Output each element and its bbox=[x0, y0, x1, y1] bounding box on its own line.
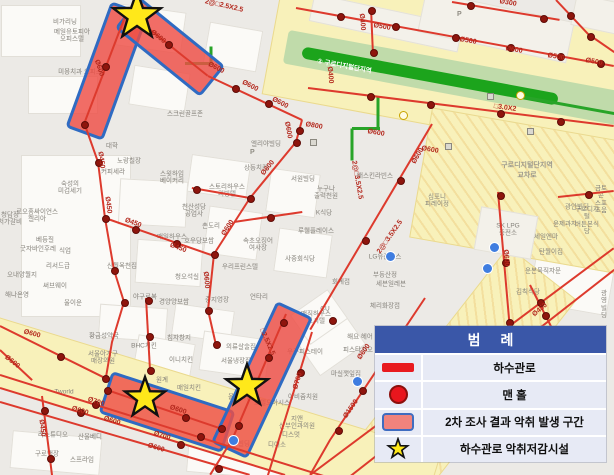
parking-icon: P bbox=[250, 149, 255, 156]
building-label: 메일유토피아 오피스텔 bbox=[54, 29, 90, 44]
manhole bbox=[235, 422, 243, 430]
building-label: 호우당보쌈 bbox=[184, 237, 214, 244]
pipe-size-label: Ø400 bbox=[326, 66, 334, 84]
pipe-size-label: Ø600 bbox=[202, 271, 210, 289]
utility-box-icon bbox=[310, 139, 317, 146]
manhole bbox=[205, 307, 213, 315]
pipe-size-label: Ø600 bbox=[283, 121, 293, 139]
manhole bbox=[247, 195, 255, 203]
building-label: 써브웨이 bbox=[43, 282, 67, 289]
legend-label-manhole: 맨 홀 bbox=[423, 382, 606, 407]
legend-title: 범 례 bbox=[375, 326, 606, 353]
building-label: 침자창지 bbox=[167, 334, 191, 341]
manhole bbox=[567, 12, 575, 20]
building-label: 속초오징어 여사장 bbox=[243, 238, 273, 253]
manhole bbox=[397, 177, 405, 185]
manhole bbox=[165, 41, 173, 49]
building-label: 스크린골프존 bbox=[167, 110, 203, 117]
building-label: 광영빌딩 bbox=[599, 290, 609, 320]
building-label: 세븐일레븐 bbox=[376, 280, 406, 287]
building-label: 대학 bbox=[106, 142, 118, 149]
manhole bbox=[337, 13, 345, 21]
manhole bbox=[557, 118, 565, 126]
building-label: 윤제과자 bbox=[553, 220, 577, 227]
pipe-size-label: 2@□3.5X2.5 bbox=[350, 160, 364, 200]
building-label: K식당 bbox=[316, 209, 332, 216]
pipe-size-label: Ø700 bbox=[292, 372, 304, 390]
building-label: 커피세라 bbox=[101, 168, 125, 175]
legend-row-manhole: 맨 홀 bbox=[375, 382, 606, 407]
building-label: 식업 bbox=[59, 247, 71, 254]
odor-facility-star bbox=[108, 0, 166, 45]
building-label: 울이운 bbox=[64, 299, 82, 306]
manhole bbox=[427, 101, 435, 109]
manhole bbox=[368, 7, 376, 15]
manhole bbox=[197, 433, 205, 441]
manhole bbox=[218, 425, 226, 433]
pipe-size-label: Ø600 bbox=[502, 249, 510, 267]
legend-row-sewer-pipe: 하수관로 bbox=[375, 355, 606, 380]
subway-track-line bbox=[351, 128, 354, 160]
building-label: 체리화장점 bbox=[370, 302, 400, 309]
sewer-pipe-symbol bbox=[382, 363, 414, 372]
manhole bbox=[215, 465, 223, 473]
manhole bbox=[542, 312, 550, 320]
building-label: 경양양보쌈 bbox=[159, 298, 189, 305]
utility-box-icon bbox=[487, 93, 494, 100]
building-label: 천산성당 공업사 bbox=[182, 204, 206, 219]
building-label: 산울베디 bbox=[78, 433, 102, 440]
manhole bbox=[392, 23, 400, 31]
odor-facility-star bbox=[221, 360, 273, 412]
legend-row-odor-facility: 하수관로 악취저감시설 bbox=[375, 437, 606, 462]
manhole bbox=[293, 139, 301, 147]
manhole bbox=[585, 191, 593, 199]
manhole bbox=[41, 407, 49, 415]
building-label: 운본묵직자문 bbox=[525, 267, 561, 274]
building-label: 굿자바인후레 bbox=[20, 245, 56, 252]
manhole bbox=[587, 33, 595, 41]
manhole bbox=[145, 297, 153, 305]
transit-stop-icon bbox=[228, 435, 239, 446]
building-label: 금토콘 스포츠움 bbox=[595, 185, 608, 215]
manhole bbox=[57, 353, 65, 361]
manhole bbox=[362, 237, 370, 245]
legend-label-odor-facility: 하수관로 악취저감시설 bbox=[423, 437, 606, 462]
building-label: 서울아가구 매장의원 bbox=[88, 351, 118, 366]
building-label: 사중회식당 bbox=[285, 255, 315, 262]
odor-section-symbol bbox=[382, 413, 414, 431]
transit-stop-icon bbox=[482, 263, 493, 274]
transit-stop-icon bbox=[385, 251, 396, 262]
manhole-symbol bbox=[389, 385, 408, 404]
building-label: 리서드급 bbox=[46, 262, 70, 269]
building-label: 촌도리 bbox=[202, 222, 220, 229]
map-screenshot: ② 구로디지털단지역Ø500Ø500Ø600Ø500Ø500Ø300Ø400Ø4… bbox=[0, 0, 614, 475]
manhole bbox=[497, 192, 505, 200]
building-label: 심포니 피레이정 bbox=[425, 194, 449, 209]
manhole bbox=[232, 85, 240, 93]
building-label: 부동산정 bbox=[373, 271, 397, 278]
manhole bbox=[280, 319, 288, 327]
building-label: 언타리 bbox=[250, 293, 268, 300]
manhole bbox=[102, 215, 110, 223]
building-label: 베등질 bbox=[36, 236, 54, 243]
pipe-size-label: Ø450 bbox=[96, 151, 105, 169]
building-label: 탄월이집 bbox=[539, 248, 563, 255]
subway-track-line bbox=[377, 97, 380, 128]
building bbox=[273, 227, 333, 278]
building-label: 배스킨라빈스 bbox=[357, 172, 393, 179]
legend-row-odor-section: 2차 조사 결과 악취 발생 구간 bbox=[375, 410, 606, 435]
utility-box-icon bbox=[527, 128, 534, 135]
pipe-size-label: 2@□2.5X2.5 bbox=[204, 0, 244, 14]
building-label: 이니치킨 bbox=[169, 356, 193, 363]
building-label: 스윗하임 베이커리 bbox=[160, 171, 184, 186]
pipe-size-label: Ø800 bbox=[305, 121, 323, 131]
building-label: 매일치킨 bbox=[177, 384, 201, 391]
building-label: 해나온영 bbox=[5, 291, 29, 298]
manhole bbox=[102, 375, 110, 383]
transit-stop-icon bbox=[489, 242, 500, 253]
odor-facility-star bbox=[120, 373, 170, 423]
transit-stop-icon bbox=[352, 376, 363, 387]
legend-label-sewer-pipe: 하수관로 bbox=[423, 355, 606, 380]
manhole bbox=[81, 121, 89, 129]
odor-facility-star-symbol bbox=[386, 437, 410, 461]
legend: 범 례 하수관로 맨 홀 2차 조사 결과 악취 발생 구간 bbox=[375, 326, 606, 462]
building-label: 로오홈싸이언스 켈리아 bbox=[16, 209, 58, 224]
building-label: 디스멋 bbox=[282, 431, 300, 438]
building-label: 광안빌딩 bbox=[565, 203, 589, 210]
parking-icon: P bbox=[457, 11, 462, 18]
manhole bbox=[296, 127, 304, 135]
manhole bbox=[146, 333, 154, 341]
building-label: 노랑칠장 bbox=[117, 157, 141, 164]
building-label: 루웰플레이스 bbox=[298, 227, 334, 234]
building-label: 세일엔마 bbox=[534, 233, 558, 240]
manhole bbox=[540, 15, 548, 23]
manhole bbox=[467, 2, 475, 10]
building-label: BHC치킨 bbox=[131, 342, 157, 349]
building-label: 우리프린스텔 bbox=[222, 263, 258, 270]
manhole bbox=[121, 299, 129, 307]
pipe-size-label: 2@□3.5X2.5 bbox=[376, 219, 404, 255]
route-marker-icon bbox=[516, 91, 525, 100]
manhole bbox=[47, 455, 55, 463]
manhole bbox=[211, 251, 219, 259]
building-label: 엘리야빌딩 bbox=[251, 140, 281, 147]
manhole bbox=[335, 427, 343, 435]
manhole bbox=[104, 387, 112, 395]
building-label: 청오석실 bbox=[175, 273, 199, 280]
pipe-size-label: Ø600 bbox=[367, 128, 385, 138]
manhole bbox=[267, 214, 275, 222]
building-label: 스프라임 bbox=[70, 456, 94, 463]
manhole bbox=[111, 267, 119, 275]
manhole bbox=[193, 186, 201, 194]
building-label: 서원빌딩 bbox=[291, 175, 315, 182]
building-label: 누구나 출력천원 bbox=[314, 186, 338, 201]
manhole bbox=[359, 387, 367, 395]
building-label: 비가리닝 bbox=[53, 18, 77, 25]
manhole bbox=[177, 441, 185, 449]
route-marker-icon bbox=[399, 111, 408, 120]
manhole bbox=[370, 49, 378, 57]
building-label: 해요 헤어 bbox=[347, 333, 373, 340]
pipe-size-label: Ø600 bbox=[147, 442, 165, 454]
manhole bbox=[367, 93, 375, 101]
manhole bbox=[213, 341, 221, 349]
legend-label-odor-section: 2차 조사 결과 악취 발생 구간 bbox=[423, 410, 606, 435]
manhole bbox=[329, 317, 337, 325]
intersection-label: 구로디지털단지역 교차로 bbox=[501, 160, 553, 180]
utility-box-icon bbox=[445, 143, 452, 150]
building-label: 숙성의 미검세기 bbox=[58, 181, 82, 196]
building-label: 청담정 처가갈비 bbox=[0, 212, 22, 227]
building-label: 의류살술집 bbox=[226, 343, 256, 350]
pipe-size-label: Ø400 bbox=[358, 13, 366, 31]
pipe-size-label: Ø1500 bbox=[342, 398, 360, 419]
building-label: 오내앙월지 bbox=[7, 271, 37, 278]
